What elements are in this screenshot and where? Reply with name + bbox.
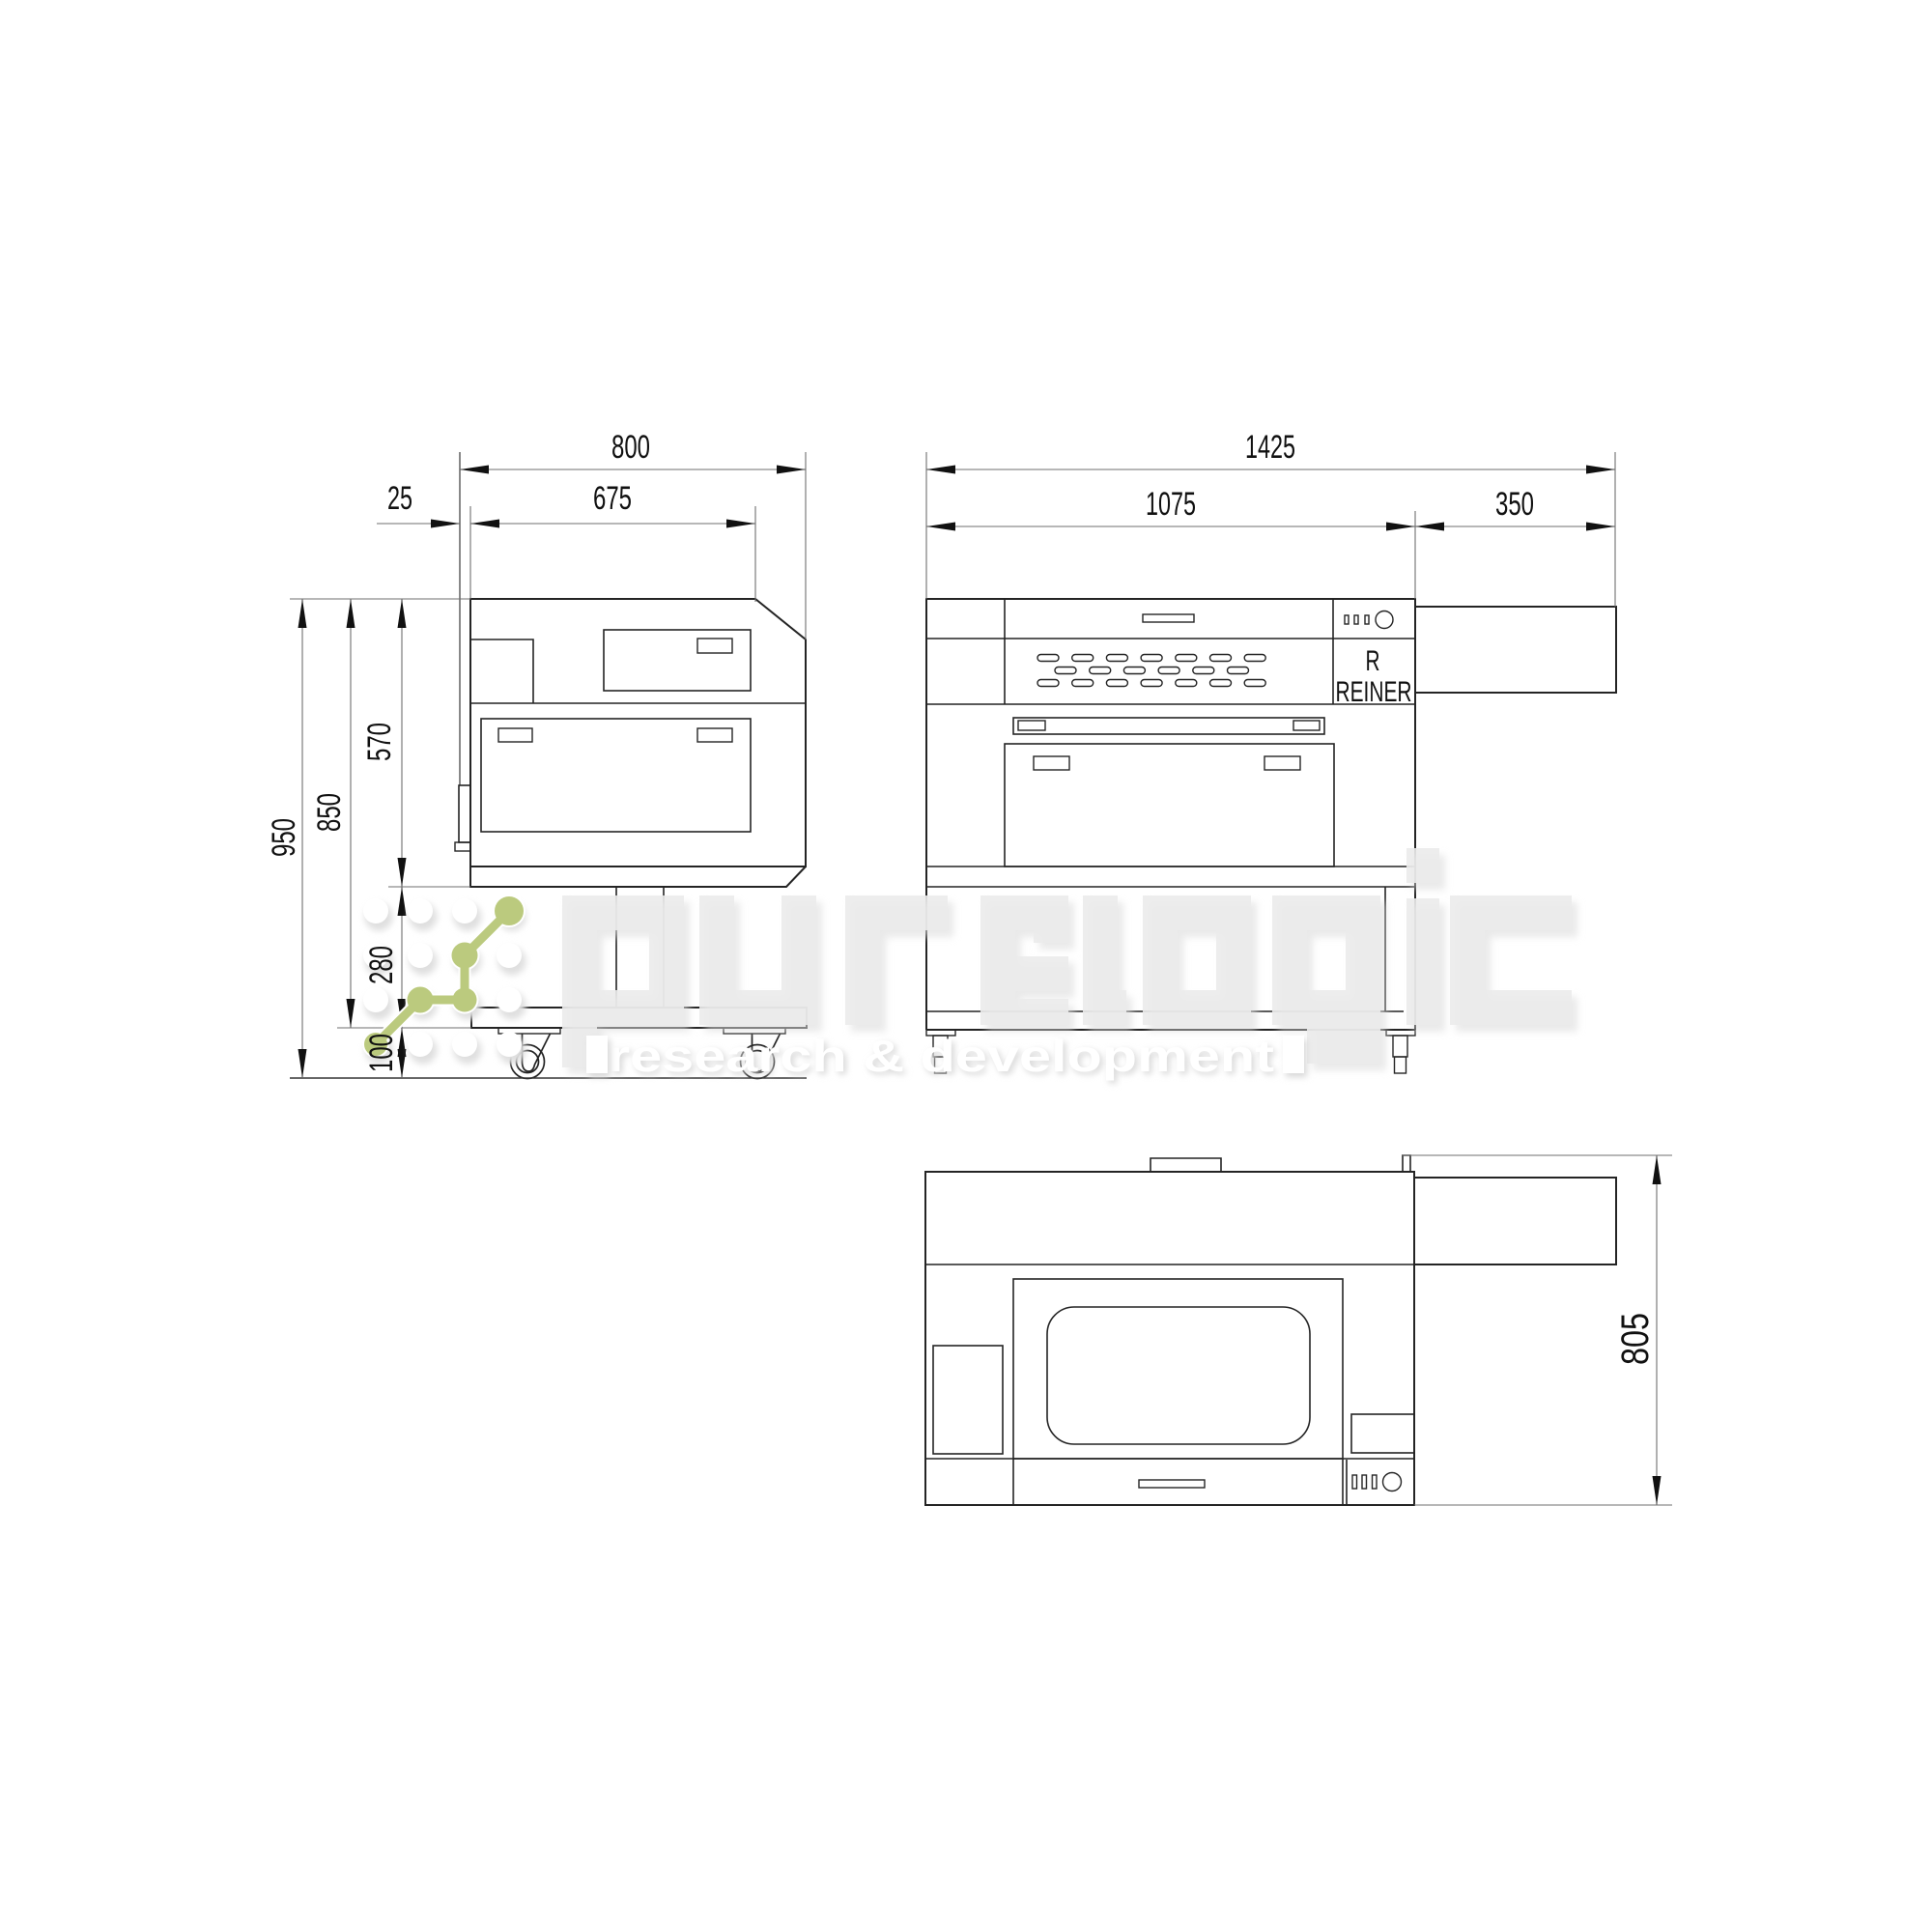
svg-text:950: 950 <box>266 818 302 857</box>
svg-text:850: 850 <box>311 793 348 832</box>
svg-text:REINER: REINER <box>1336 676 1412 708</box>
svg-text:research & development: research & development <box>608 1031 1274 1081</box>
svg-text:25: 25 <box>387 480 412 517</box>
svg-text:675: 675 <box>593 480 632 517</box>
svg-text:570: 570 <box>361 723 398 761</box>
svg-text:R: R <box>1366 645 1380 677</box>
svg-text:100: 100 <box>363 1034 400 1072</box>
svg-text:800: 800 <box>611 429 650 466</box>
svg-text:805: 805 <box>1614 1313 1657 1365</box>
svg-text:350: 350 <box>1495 486 1534 523</box>
svg-text:1425: 1425 <box>1245 429 1295 466</box>
svg-text:280: 280 <box>363 946 400 984</box>
svg-text:1075: 1075 <box>1146 486 1196 523</box>
